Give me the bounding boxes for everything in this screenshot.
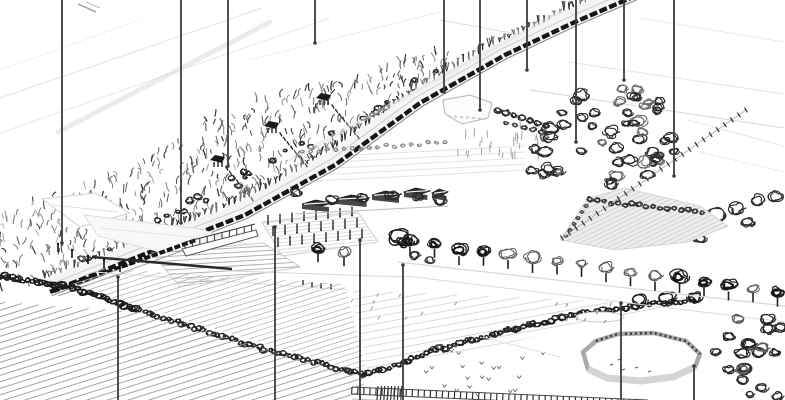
callout-top-5-end-dot: [442, 90, 446, 94]
callout-top-1-end-dot: [60, 241, 64, 245]
callout-top-6-end-dot: [478, 108, 482, 112]
callout-bottom-2-end-dot: [273, 225, 277, 229]
callout-bottom-5-end-dot: [619, 301, 623, 305]
callout-top-3-end-dot: [226, 164, 230, 168]
sketch-canvas: [0, 0, 785, 400]
callout-bottom-6-end-dot: [692, 364, 696, 368]
callout-top-8-end-dot: [574, 140, 578, 144]
callout-top-2-end-dot: [179, 221, 183, 225]
callout-top-9-end-dot: [622, 78, 626, 82]
callout-top-7-end-dot: [525, 68, 529, 72]
callout-bottom-1-end-dot: [116, 275, 120, 279]
callout-top-4-end-dot: [313, 41, 317, 45]
callout-bottom-4-end-dot: [401, 263, 405, 267]
callout-bottom-3-end-dot: [358, 238, 362, 242]
landscape-sketch: [0, 0, 785, 400]
callout-top-10-end-dot: [672, 174, 676, 178]
